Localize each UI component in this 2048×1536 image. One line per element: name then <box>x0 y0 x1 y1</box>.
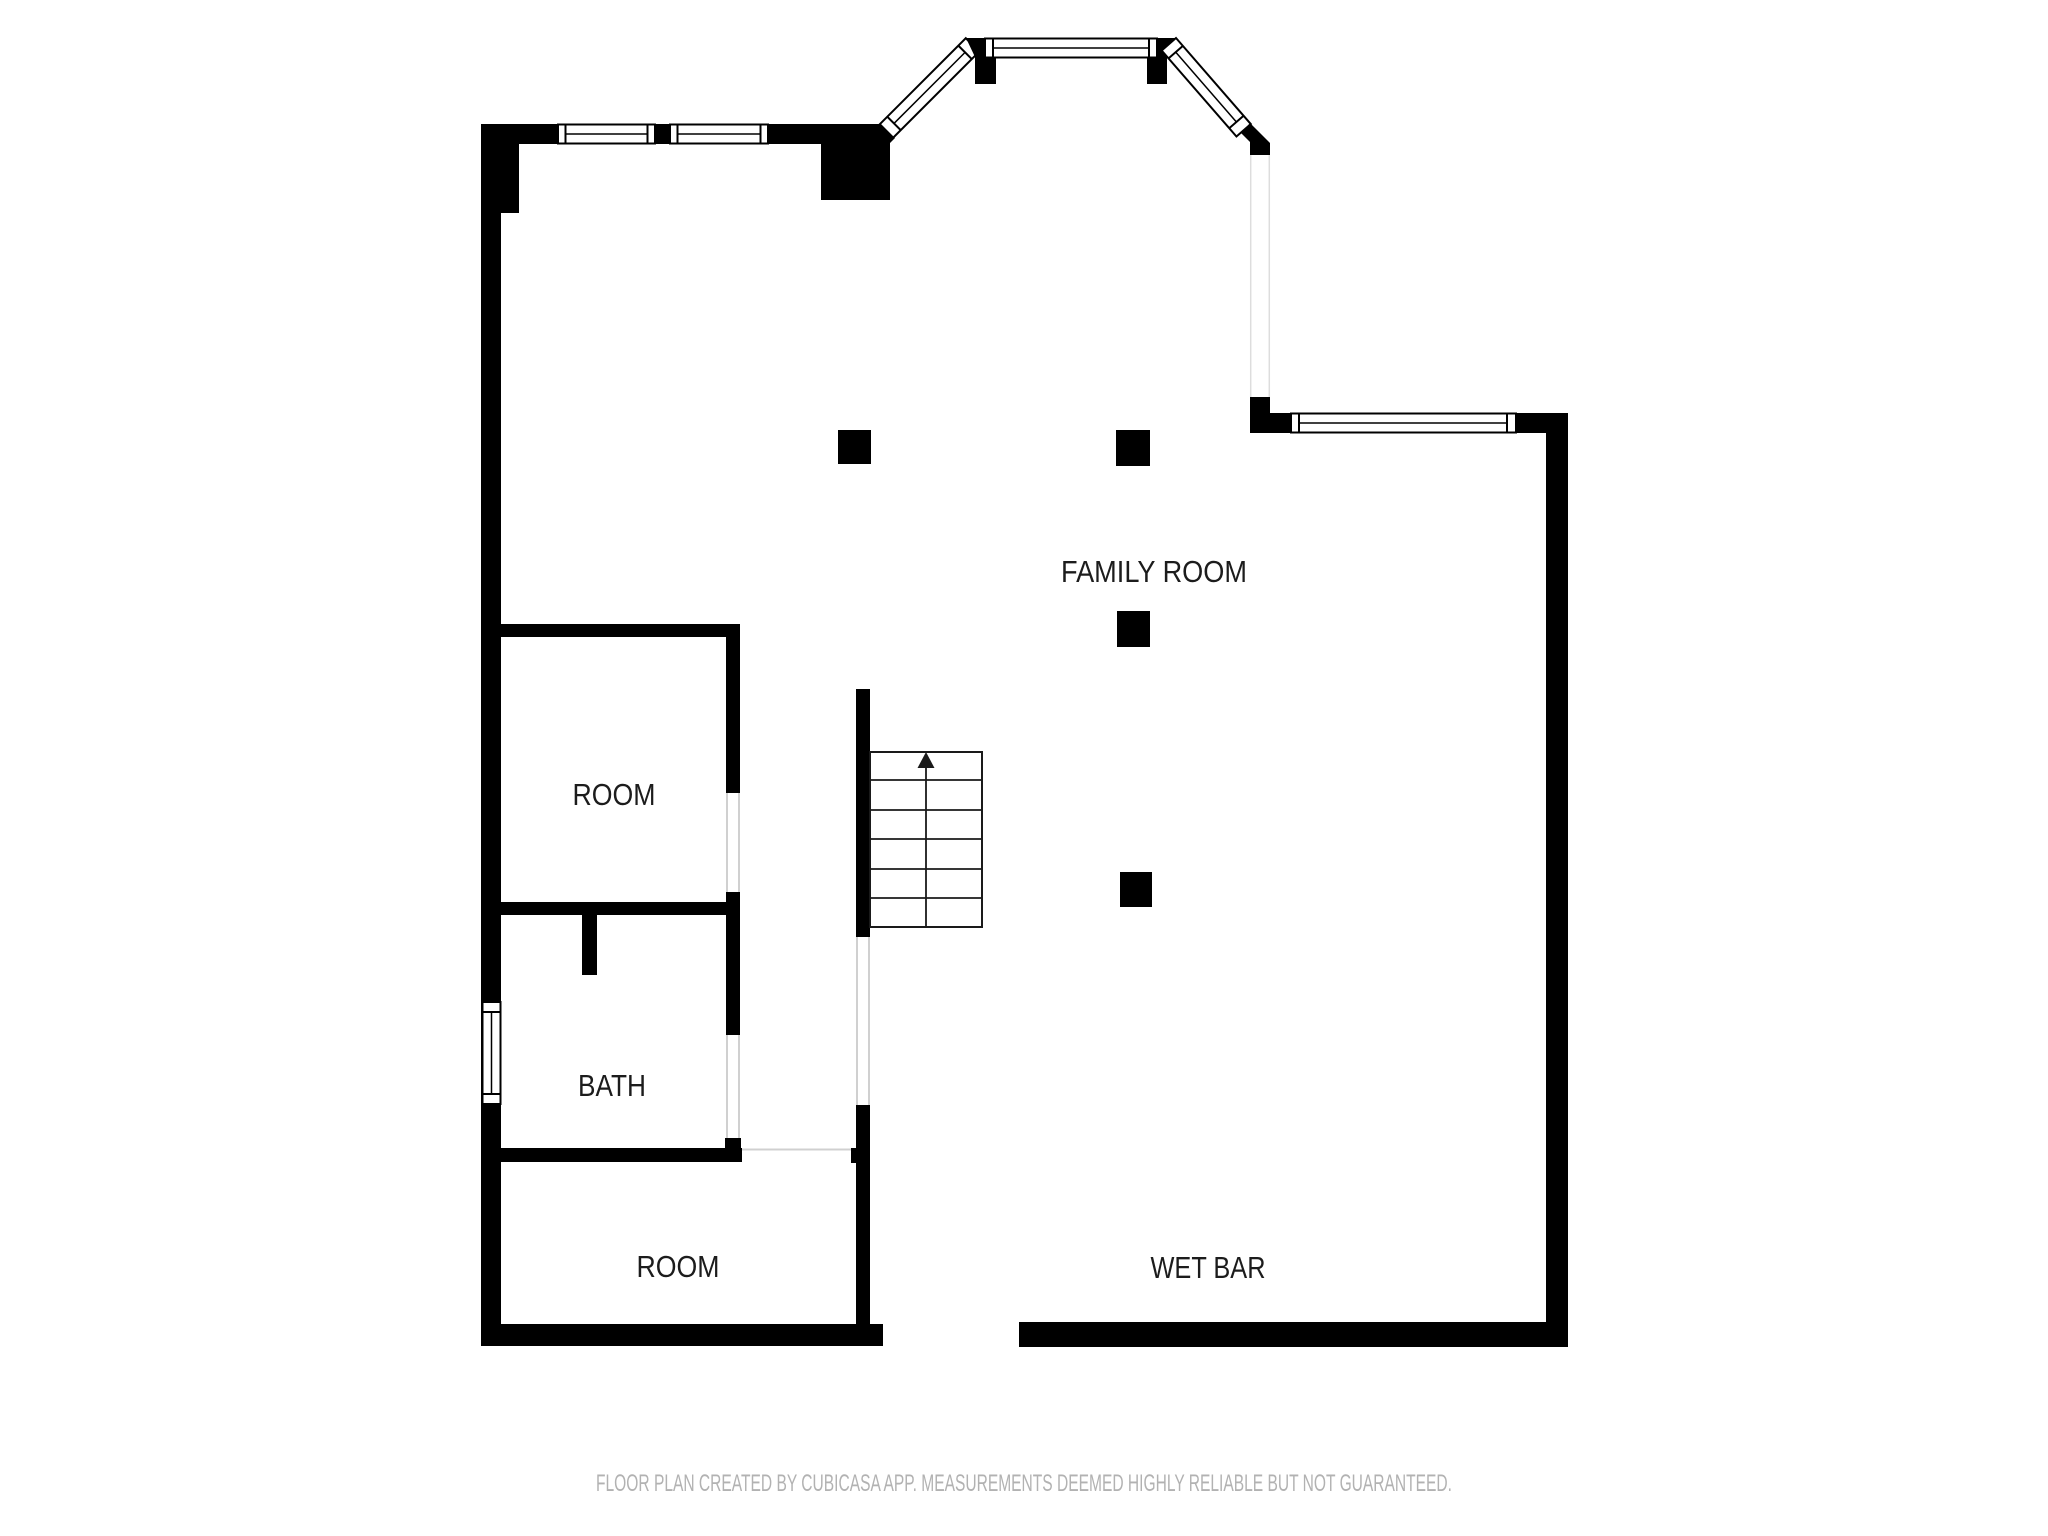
svg-text:WET BAR: WET BAR <box>1151 1250 1266 1285</box>
svg-text:BATH: BATH <box>578 1068 646 1103</box>
svg-text:FAMILY ROOM: FAMILY ROOM <box>1061 554 1247 589</box>
svg-text:ROOM: ROOM <box>573 777 656 812</box>
svg-text:FLOOR PLAN CREATED BY CUBICASA: FLOOR PLAN CREATED BY CUBICASA APP. MEAS… <box>596 1470 1452 1497</box>
svg-text:ROOM: ROOM <box>637 1249 720 1284</box>
